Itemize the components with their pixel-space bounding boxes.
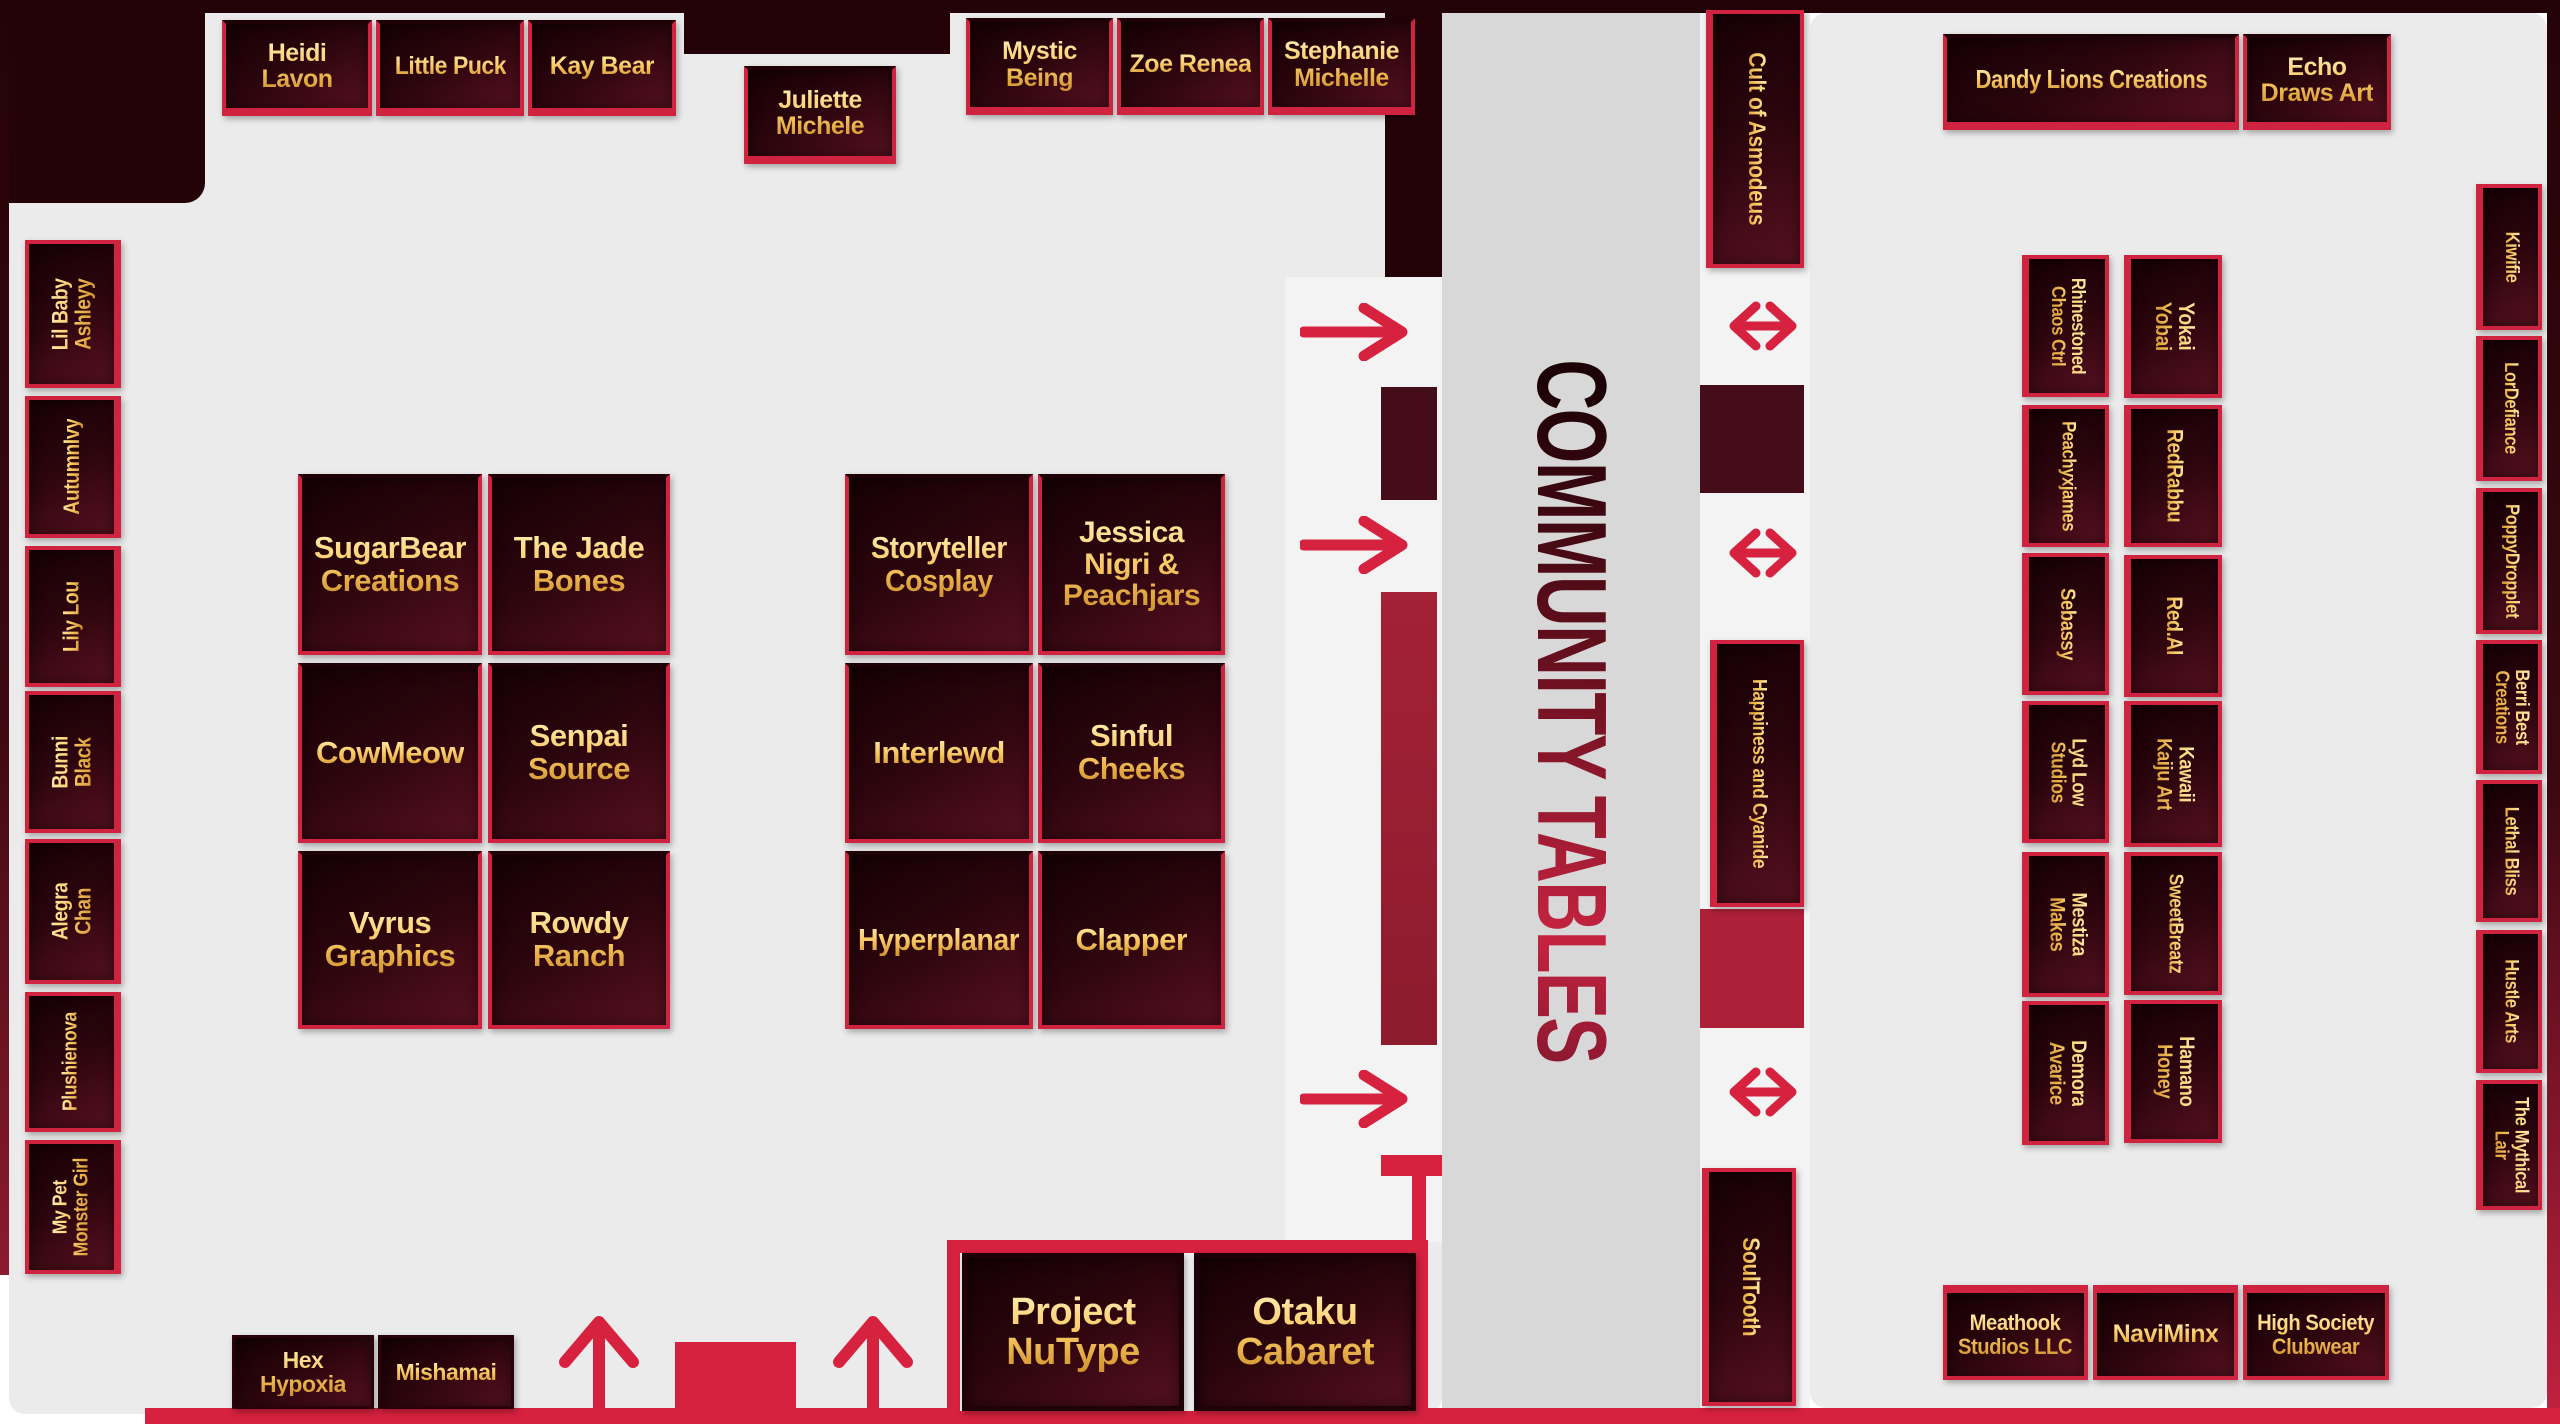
booth-sinful-cheeks: Sinful Cheeks — [1038, 663, 1225, 843]
right-wall — [2547, 0, 2560, 1424]
left-aisle-dark-block — [1381, 387, 1437, 500]
community-tables-title: COMMUNITY TABLES — [1442, 13, 1700, 1408]
right-arrow-icon — [1300, 303, 1412, 361]
right-arrow-icon — [1300, 1070, 1412, 1128]
left-aisle-red-bar — [1381, 592, 1437, 1045]
double-arrow-icon — [1726, 527, 1800, 579]
community-tables-label: COMMUNITY TABLES — [1514, 359, 1628, 1062]
booth-redrabbu: RedRabbu — [2124, 405, 2222, 547]
booth-echo-draws-art: Echo Draws Art — [2243, 34, 2391, 130]
booth-alegra-chan: Alegra Chan — [25, 839, 121, 984]
booth-yokai-yobai: Yokai Yobai — [2124, 255, 2222, 398]
booth-rhinestoned-chaos-ctrl: Rhinestoned Chaos Ctrl — [2022, 255, 2109, 397]
booth-sweetbreatz: SweetBreatz — [2124, 852, 2222, 995]
booth-lily-lou: Lily Lou — [25, 546, 121, 687]
booth-mystic-being: Mystic Being — [966, 18, 1113, 115]
booth-otaku-cabaret: Otaku Cabaret — [1194, 1253, 1416, 1411]
booth-hamano-honey: Hamano Honey — [2124, 1000, 2222, 1143]
booth-lil-baby-ashleyy: Lil Baby Ashleyy — [25, 240, 121, 388]
booth-poppydropplet: PoppyDropplet — [2476, 488, 2542, 634]
booth-happiness-and-cyanide: Happiness and Cyanide — [1710, 640, 1804, 907]
top-left-corner-block — [0, 0, 205, 203]
booth-high-society-clubwear: High Society Clubwear — [2243, 1285, 2389, 1380]
left-aisle-red-wall-vertical — [1412, 1176, 1426, 1242]
left-room-floor — [9, 13, 1442, 1414]
booth-lyd-low-studios: Lyd Low Studios — [2022, 701, 2109, 843]
booth-autumnivy: AutumnIvy — [25, 396, 121, 538]
booth-the-jade-bones: The Jade Bones — [488, 474, 670, 655]
top-wall — [0, 0, 2560, 13]
booth-demora-avarice: Demora Avarice — [2022, 1001, 2109, 1145]
booth-rowdy-ranch: Rowdy Ranch — [488, 851, 670, 1029]
up-arrow-icon — [556, 1312, 642, 1412]
booth-jessica-nigri-peachjars: Jessica Nigri & Peachjars — [1038, 474, 1225, 655]
double-arrow-icon — [1726, 300, 1800, 352]
booth-the-mythical-lair: The Mythical Lair — [2476, 1080, 2542, 1210]
booth-hyperplanar: Hyperplanar — [845, 851, 1033, 1029]
booth-heidi-lavon: Heidi Lavon — [222, 20, 372, 116]
right-aisle-dark-block — [1700, 385, 1804, 493]
booth-naviminx: NaviMinx — [2093, 1285, 2238, 1380]
booth-meathook-studios-llc: Meathook Studios LLC — [1943, 1285, 2088, 1380]
booth-peachyxjames: Peachyxjames — [2022, 405, 2109, 547]
top-mid-wall-block — [684, 13, 950, 54]
booth-kawaii-kaiju-art: Kawaii Kaiju Art — [2124, 701, 2222, 847]
left-aisle-red-wall-horizontal — [1381, 1155, 1442, 1176]
booth-storyteller-cosplay: Storyteller Cosplay — [845, 474, 1033, 655]
booth-zoe-renea: Zoe Renea — [1117, 18, 1264, 115]
booth-mestiza-makes: Mestiza Makes — [2022, 852, 2109, 997]
booth-vyrus-graphics: Vyrus Graphics — [298, 851, 482, 1029]
booth-mishamai: Mishamai — [378, 1335, 514, 1409]
booth-stephanie-michelle: Stephanie Michelle — [1268, 18, 1415, 115]
booth-project-nutype: Project NuType — [962, 1253, 1184, 1411]
booth-bunni-black: Bunni Black — [25, 691, 121, 833]
right-arrow-icon — [1300, 516, 1412, 574]
booth-soultooth: SoulTooth — [1702, 1168, 1796, 1406]
booth-cult-of-asmodeus: Cult of Asmodeus — [1706, 10, 1804, 268]
booth-senpai-source: Senpai Source — [488, 663, 670, 843]
bottom-red-block — [675, 1342, 796, 1408]
booth-clapper: Clapper — [1038, 851, 1225, 1029]
booth-cowmeow: CowMeow — [298, 663, 482, 843]
booth-kay-bear: Kay Bear — [528, 20, 676, 116]
booth-dandy-lions-creations: Dandy Lions Creations — [1943, 34, 2239, 130]
right-aisle-red-block — [1700, 909, 1804, 1028]
double-arrow-icon — [1726, 1066, 1800, 1118]
booth-red-al: Red.Al — [2124, 555, 2222, 697]
floor-map: COMMUNITY TABLES Heidi Lavon Little Puck… — [0, 0, 2560, 1424]
booth-lordefiance: LorDefiance — [2476, 336, 2542, 481]
booth-sugarbear-creations: SugarBear Creations — [298, 474, 482, 655]
booth-hex-hypoxia: Hex Hypoxia — [232, 1335, 374, 1409]
booth-berri-best-creations: Berri Best Creations — [2476, 640, 2542, 774]
booth-hustle-arts: Hustle Arts — [2476, 930, 2542, 1073]
booth-kiwifie: Kiwifie — [2476, 184, 2542, 330]
booth-sebassy: Sebassy — [2022, 553, 2109, 695]
booth-juliette-michele: Juliette Michele — [744, 66, 896, 164]
up-arrow-icon — [830, 1312, 916, 1412]
booth-little-puck: Little Puck — [376, 20, 524, 116]
booth-my-pet-monster-girl: My Pet Monster Girl — [25, 1140, 121, 1274]
left-wall — [0, 13, 9, 1275]
booth-interlewd: Interlewd — [845, 663, 1033, 843]
booth-lethal-bliss: Lethal Bliss — [2476, 780, 2542, 922]
booth-plushienova: Plushienova — [25, 992, 121, 1132]
